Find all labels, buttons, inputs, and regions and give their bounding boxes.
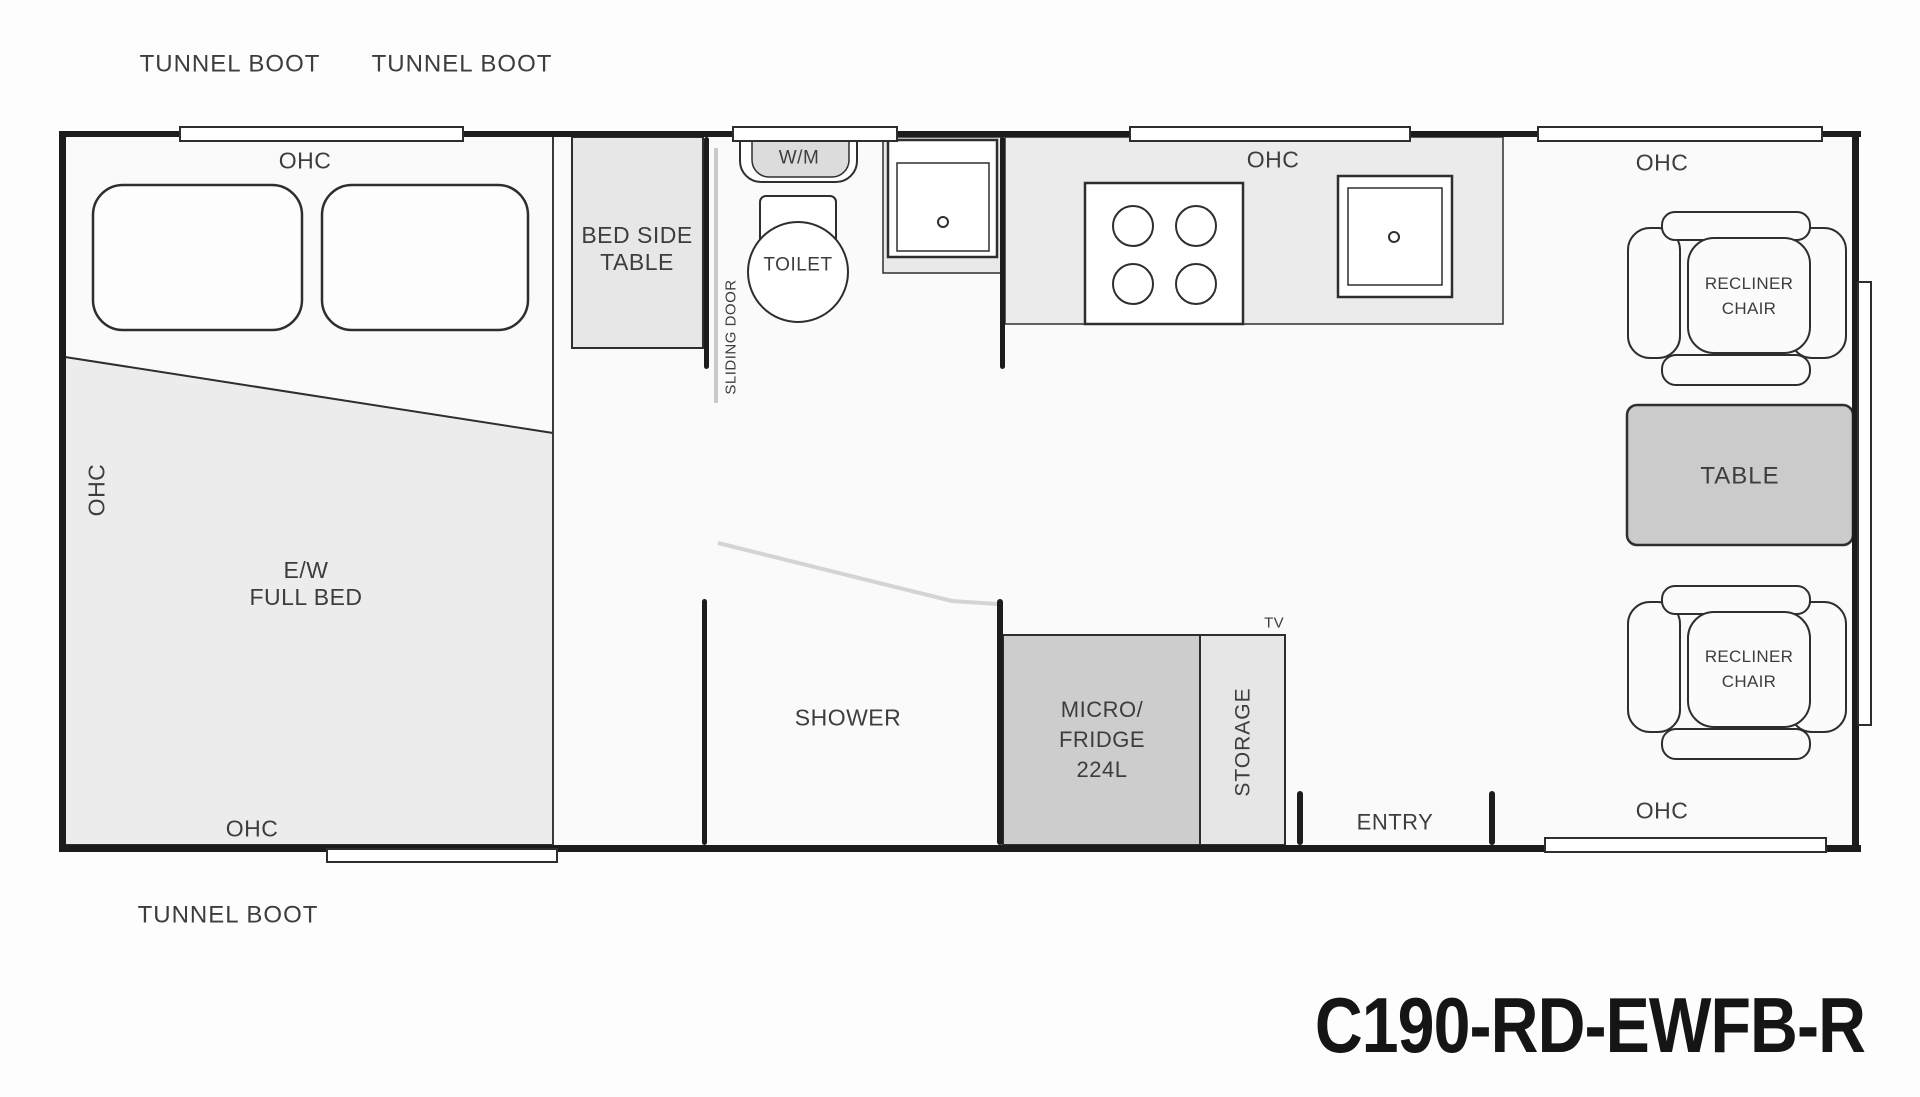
label-table: TABLE	[1700, 463, 1779, 490]
wall-bathroom-right	[1000, 137, 1005, 369]
label-recliner-bottom-line1: RECLINER	[1705, 647, 1793, 666]
label-bed-line1: E/W	[284, 557, 329, 583]
vanity-sink-drain	[938, 217, 948, 227]
window-top-bathroom	[733, 127, 897, 141]
stove-burner	[1113, 206, 1153, 246]
label-bed: E/W FULL BED	[249, 557, 362, 611]
window-top-kitchen	[1130, 127, 1410, 141]
recliner-back-cushion	[1662, 586, 1810, 614]
label-bed-line2: FULL BED	[249, 584, 362, 610]
label-ohc-bed-top: OHC	[279, 148, 332, 175]
label-ohc-kitchen: OHC	[1247, 147, 1300, 174]
label-bed-side-table: BED SIDE TABLE	[581, 222, 692, 276]
label-ohc-bed-side: OHC	[84, 464, 111, 517]
pillow-right	[322, 185, 528, 330]
label-micro-fridge-line3: 224L	[1077, 757, 1128, 782]
window-top-lounge	[1538, 127, 1822, 141]
stove-burner	[1176, 264, 1216, 304]
label-washing-machine: W/M	[779, 145, 820, 172]
recliner-front-cushion	[1662, 729, 1810, 759]
wall-shower-right	[997, 599, 1003, 845]
label-ohc-lounge-top: OHC	[1636, 150, 1689, 177]
stove-burner	[1176, 206, 1216, 246]
label-recliner-bottom: RECLINER CHAIR	[1705, 644, 1793, 694]
label-tv: TV	[1264, 610, 1284, 637]
label-sliding-door: SLIDING DOOR	[718, 279, 745, 394]
label-micro-fridge-line1: MICRO/	[1061, 697, 1143, 722]
recliner-armrest-left	[1628, 228, 1680, 358]
wall-bathroom-left	[704, 137, 709, 369]
label-tunnel-boot-1: TUNNEL BOOT	[140, 51, 321, 78]
floorplan-canvas: TUNNEL BOOT TUNNEL BOOT TUNNEL BOOT OHC …	[0, 0, 1920, 1097]
window-bottom-bedroom	[327, 849, 557, 862]
stove-burner	[1113, 264, 1153, 304]
label-recliner-top-line2: CHAIR	[1722, 299, 1776, 318]
label-ohc-bed-bottom: OHC	[226, 816, 279, 843]
label-entry: ENTRY	[1357, 809, 1434, 836]
recliner-front-cushion	[1662, 355, 1810, 385]
label-bed-side-table-line2: TABLE	[600, 249, 674, 275]
label-recliner-bottom-line2: CHAIR	[1722, 672, 1776, 691]
wall-left	[59, 131, 66, 852]
window-rear	[1858, 282, 1871, 725]
wall-entry-stub-left	[1297, 791, 1303, 845]
label-shower: SHOWER	[795, 705, 902, 732]
label-toilet: TOILET	[763, 252, 832, 279]
label-micro-fridge-line2: FRIDGE	[1059, 727, 1145, 752]
stove	[1085, 183, 1243, 324]
recliner-armrest-left	[1628, 602, 1680, 732]
label-ohc-lounge-bottom: OHC	[1636, 798, 1689, 825]
model-code: C190-RD-EWFB-R	[1315, 982, 1865, 1071]
label-bed-side-table-line1: BED SIDE	[581, 222, 692, 248]
label-tunnel-boot-2: TUNNEL BOOT	[372, 51, 553, 78]
window-top-bedroom	[180, 127, 463, 141]
pillow-left	[93, 185, 302, 330]
wall-entry-stub-right	[1489, 791, 1495, 845]
label-recliner-top-line1: RECLINER	[1705, 274, 1793, 293]
label-recliner-top: RECLINER CHAIR	[1705, 271, 1793, 321]
label-micro-fridge: MICRO/ FRIDGE 224L	[1059, 695, 1145, 785]
window-bottom-lounge	[1545, 838, 1826, 852]
recliner-back-cushion	[1662, 212, 1810, 240]
wall-shower-left	[702, 599, 707, 845]
label-storage: STORAGE	[1230, 687, 1257, 796]
kitchen-sink-drain	[1389, 232, 1399, 242]
label-tunnel-boot-3: TUNNEL BOOT	[138, 902, 319, 929]
vanity-sink-outer	[888, 140, 997, 257]
